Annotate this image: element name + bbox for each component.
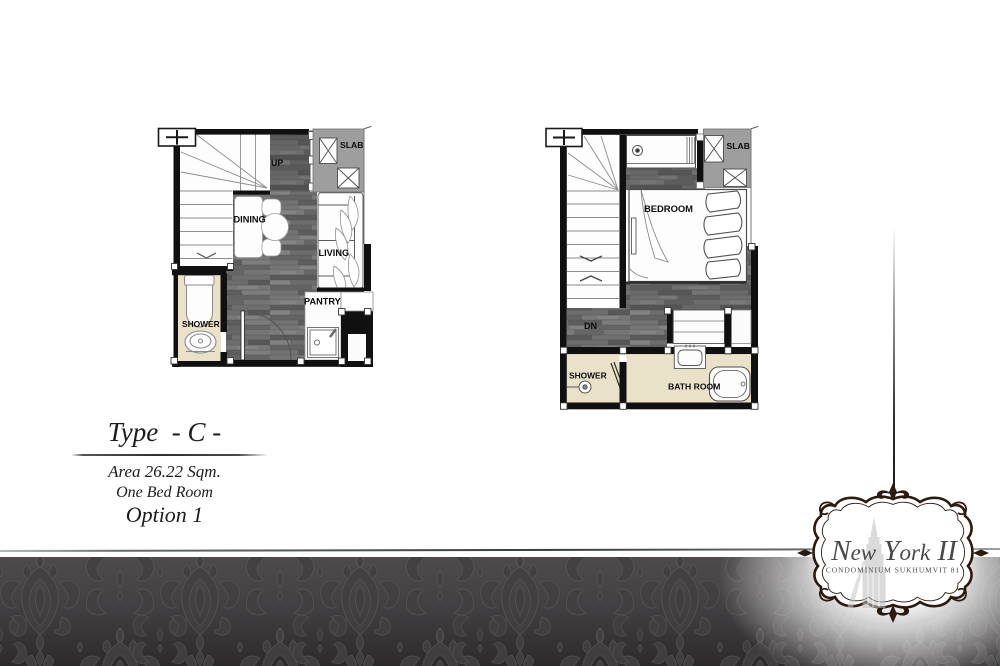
- svg-text:UP: UP: [271, 158, 283, 168]
- svg-text:DINING: DINING: [234, 215, 266, 225]
- svg-text:SHOWER: SHOWER: [182, 319, 220, 329]
- svg-text:SLAB: SLAB: [727, 141, 750, 151]
- svg-text:SHOWER: SHOWER: [569, 371, 607, 381]
- svg-text:BEDROOM: BEDROOM: [644, 203, 693, 214]
- svg-text:BATH ROOM: BATH ROOM: [668, 382, 720, 392]
- svg-text:LIVING: LIVING: [319, 248, 350, 258]
- svg-text:PANTRY: PANTRY: [304, 297, 341, 307]
- svg-text:CONDOMINIUM SUKHUMVIT 81: CONDOMINIUM SUKHUMVIT 81: [826, 566, 960, 575]
- svg-text:DN: DN: [584, 321, 597, 331]
- svg-text:SLAB: SLAB: [340, 140, 363, 150]
- svg-text:New York II: New York II: [830, 535, 958, 567]
